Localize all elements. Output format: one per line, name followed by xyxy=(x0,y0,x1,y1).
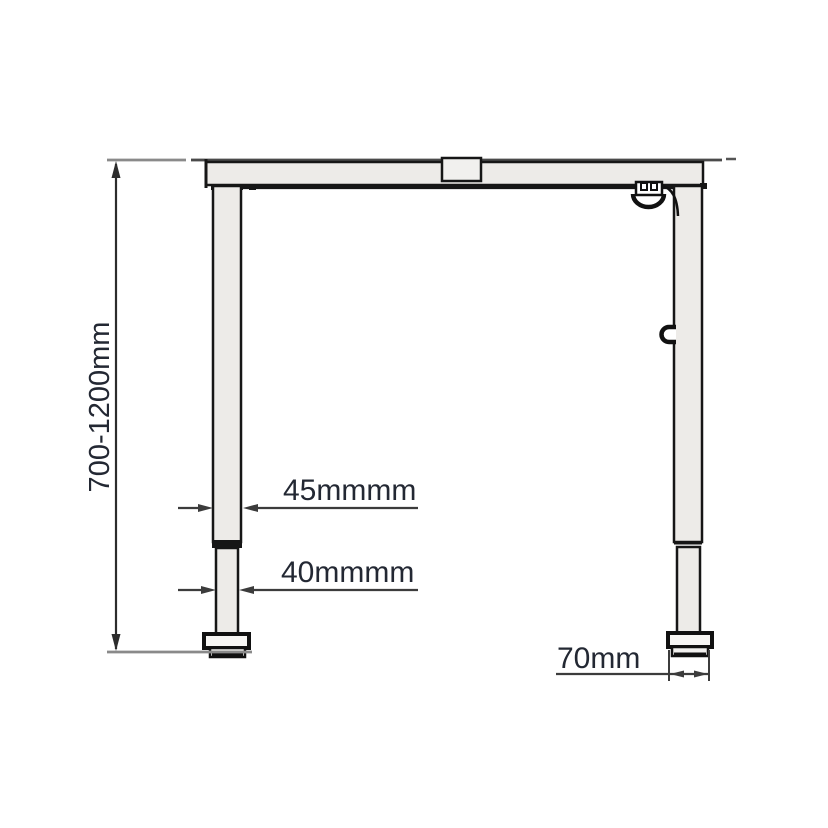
dim70-right-arrow xyxy=(694,671,708,678)
crossbeam xyxy=(206,158,707,190)
diagram-canvas: 700-1200mm 45mmmm 40mmmm 70mm xyxy=(0,0,828,828)
beam-mount-tab-left-2 xyxy=(259,184,264,189)
desk-frame-diagram: 700-1200mm 45mmmm 40mmmm 70mm xyxy=(0,0,828,828)
right-leg-upper-column xyxy=(674,186,702,542)
dim70-left-arrow xyxy=(670,671,684,678)
height-arrow-up xyxy=(112,161,121,178)
beam-mount-tab-left-1 xyxy=(249,184,256,190)
motor-bracket xyxy=(633,182,678,342)
dim40-right-arrow xyxy=(239,586,254,594)
dim45-right-arrow xyxy=(243,504,258,512)
height-dimension-label: 700-1200mm xyxy=(84,322,116,493)
motor-housing xyxy=(636,182,662,195)
upper-column-width-label: 45mmmm xyxy=(283,474,416,507)
left-leg xyxy=(204,184,249,657)
height-arrow-down xyxy=(112,634,121,651)
beam-center-connector xyxy=(442,158,481,181)
right-foot xyxy=(668,633,712,647)
foot-width-label: 70mm xyxy=(557,642,640,675)
right-leg xyxy=(668,186,712,656)
left-leg-lower-column xyxy=(216,548,238,634)
left-leg-upper-column xyxy=(213,186,241,542)
dim45-left-arrow xyxy=(198,504,213,512)
left-foot xyxy=(204,634,249,648)
dim40-left-arrow xyxy=(201,586,216,594)
left-foot-glide-pad xyxy=(212,653,243,657)
lower-column-width-label: 40mmmm xyxy=(281,556,414,589)
tabletop-line xyxy=(107,159,736,160)
cable-clip xyxy=(662,327,676,342)
lower-column-width-dimension: 40mmmm xyxy=(178,556,418,594)
right-leg-lower-column xyxy=(677,547,700,633)
